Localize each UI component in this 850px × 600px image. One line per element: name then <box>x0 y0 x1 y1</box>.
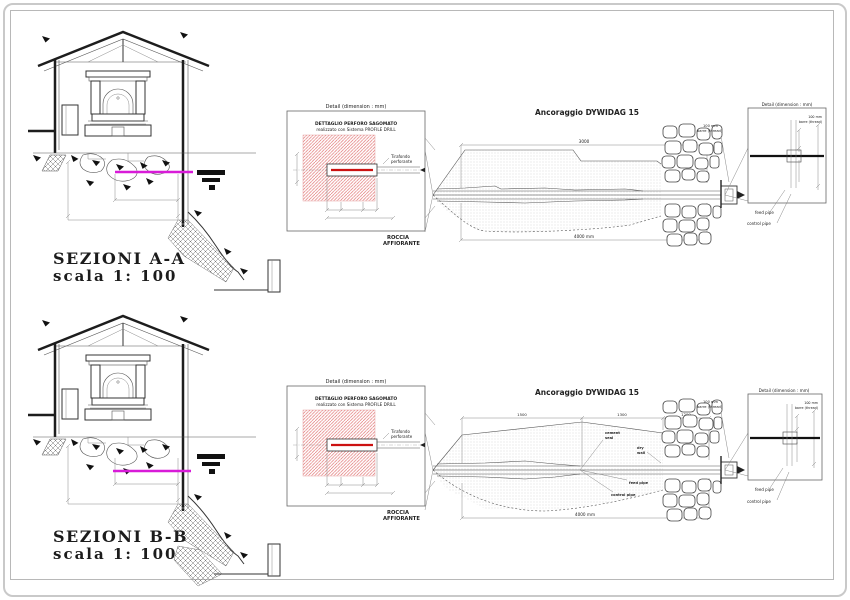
anchor-top-title: Ancoraggio DYWIDAG 15 <box>535 108 639 117</box>
section-bb-scale: scala 1: 100 <box>53 546 188 563</box>
anchor-head <box>721 456 745 484</box>
feed-pipe-mid-label: feed pipe <box>629 481 649 485</box>
seal-label-line2: seal <box>605 436 613 440</box>
head-detail-box: Detail (dimension : mm) 100 mm barre (th… <box>748 102 826 203</box>
section-aa-label: SEZIONI A-A scala 1: 100 <box>53 250 186 286</box>
drawing-sheet: Detail (dimension : mm) DETTAGLIO PERFOR… <box>0 0 850 600</box>
seal-label-line1: cement <box>605 431 620 435</box>
head-detail-header: Detail (dimension : mm) <box>759 388 810 393</box>
drill-detail-bottom <box>283 373 435 525</box>
bar-note-line2: barre (thread) <box>697 405 723 409</box>
anchor-drawing-bottom: Ancoraggio DYWIDAG 15 1500 1300 1200 400… <box>425 378 845 543</box>
head-detail-header: Detail (dimension : mm) <box>762 102 813 107</box>
head-bar-line1: 100 mm <box>808 115 822 119</box>
head-bar-line1: 100 mm <box>804 401 818 405</box>
dim-bottom-value: 4000 mm <box>575 512 595 517</box>
control-pipe-mid-label: control pipe <box>611 493 636 497</box>
head-detail-box: Detail (dimension : mm) 100 mm barre (th… <box>748 388 822 480</box>
dim-seg2: 1300 <box>617 412 627 417</box>
dim-bottom-value: 4000 mm <box>574 234 594 239</box>
anchor-drawing-top: Ancoraggio DYWIDAG 15 3000 4000 mm <box>425 98 845 263</box>
rock-mass <box>433 422 663 511</box>
section-aa-title: SEZIONI A-A <box>53 250 186 268</box>
control-pipe-label: control pipe <box>747 221 771 226</box>
section-bb-title: SEZIONI B-B <box>53 528 188 546</box>
feed-pipe-label: feed pipe <box>755 487 774 492</box>
bar-note-line2: barre (thread) <box>697 129 723 133</box>
head-bar-line2: barre (thread) <box>795 406 818 410</box>
control-pipe-label: control pipe <box>747 499 771 504</box>
head-bar-line2: barre (thread) <box>799 120 822 124</box>
bar-note-line1: 100 mm <box>703 400 719 404</box>
wall-label-line1: dry <box>637 446 644 450</box>
bar-note-line1: 100 mm <box>703 124 719 128</box>
dim-seg1: 1500 <box>517 412 527 417</box>
anchor-head <box>721 180 745 208</box>
drill-detail-top <box>283 98 435 250</box>
feed-pipe-label: feed pipe <box>755 210 774 215</box>
anchor-bottom-title: Ancoraggio DYWIDAG 15 <box>535 388 639 397</box>
section-aa-scale: scala 1: 100 <box>53 268 186 285</box>
dim-top-value: 3000 <box>579 139 590 144</box>
wall-label-line2: wall <box>637 451 645 455</box>
section-bb-label: SEZIONI B-B scala 1: 100 <box>53 528 188 564</box>
